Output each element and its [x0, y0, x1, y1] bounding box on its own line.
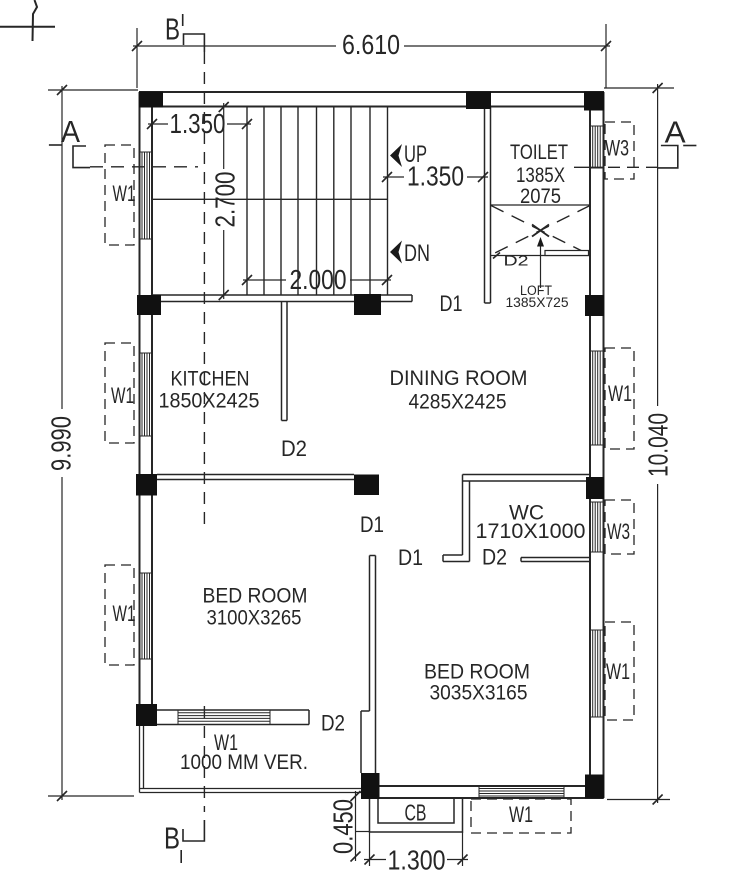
- svg-text:1.300: 1.300: [388, 845, 446, 876]
- svg-text:D2: D2: [504, 253, 529, 270]
- svg-text:W1: W1: [606, 659, 630, 684]
- svg-text:CB: CB: [405, 800, 427, 826]
- svg-text:6.610: 6.610: [342, 29, 400, 60]
- svg-text:1385X725: 1385X725: [506, 295, 569, 310]
- svg-text:B: B: [164, 821, 180, 856]
- svg-text:1.350: 1.350: [407, 161, 464, 192]
- svg-text:BED ROOM: BED ROOM: [424, 661, 530, 684]
- svg-text:W1: W1: [111, 383, 134, 408]
- svg-text:D2: D2: [482, 545, 507, 570]
- svg-text:BED ROOM: BED ROOM: [203, 585, 308, 608]
- svg-text:D2: D2: [281, 436, 307, 461]
- svg-text:DN: DN: [404, 240, 430, 267]
- svg-text:TOILET: TOILET: [510, 141, 568, 164]
- svg-text:10.040: 10.040: [643, 413, 674, 477]
- svg-text:D1: D1: [360, 512, 384, 537]
- svg-text:A: A: [61, 114, 80, 149]
- svg-text:B: B: [165, 12, 180, 47]
- svg-text:2.000: 2.000: [290, 264, 347, 295]
- svg-text:2.700: 2.700: [210, 172, 241, 228]
- svg-text:1850X2425: 1850X2425: [159, 390, 260, 413]
- svg-text:D1: D1: [440, 291, 463, 316]
- svg-text:3035X3165: 3035X3165: [430, 682, 528, 705]
- svg-text:1710X1000: 1710X1000: [476, 520, 586, 543]
- svg-text:W1: W1: [608, 381, 632, 406]
- svg-text:W3: W3: [607, 519, 630, 544]
- svg-text:DINING ROOM: DINING ROOM: [390, 367, 528, 390]
- svg-text:D1: D1: [398, 545, 423, 570]
- svg-text:2075: 2075: [520, 185, 561, 208]
- svg-text:W1: W1: [509, 802, 533, 827]
- svg-text:W1: W1: [113, 181, 136, 206]
- svg-text:0.450: 0.450: [327, 799, 358, 854]
- svg-text:W3: W3: [605, 136, 629, 161]
- svg-text:D2: D2: [321, 711, 345, 736]
- svg-text:1.350: 1.350: [170, 108, 226, 139]
- svg-text:1385X: 1385X: [516, 164, 565, 187]
- svg-text:3100X3265: 3100X3265: [207, 607, 302, 630]
- svg-text:KITCHEN: KITCHEN: [171, 368, 250, 391]
- svg-text:A: A: [665, 114, 686, 149]
- svg-text:4285X2425: 4285X2425: [409, 391, 507, 414]
- svg-text:W1: W1: [113, 601, 136, 626]
- svg-text:1000 MM VER.: 1000 MM VER.: [180, 751, 308, 774]
- svg-text:9.990: 9.990: [46, 416, 77, 471]
